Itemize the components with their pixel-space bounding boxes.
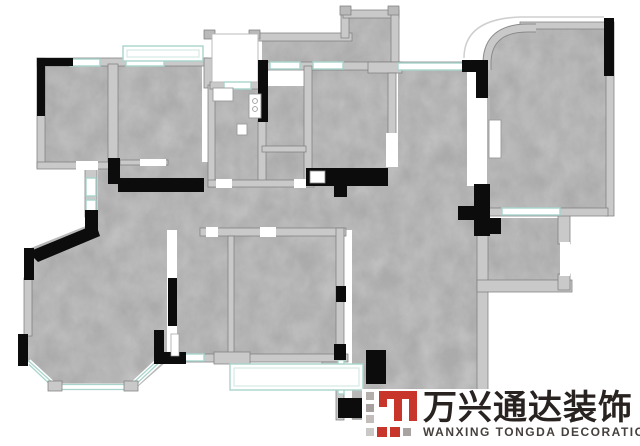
logo-text: 万兴通达装饰 WANXING TONGDA DECORATION [423,391,640,439]
logo-mark-icon [366,391,416,439]
company-logo: 万兴通达装饰 WANXING TONGDA DECORATION [366,391,640,439]
entry-door-leaf [489,120,501,158]
entry-light-well [212,34,258,82]
logo-title-chinese: 万兴通达装饰 [423,391,640,425]
bottom-balcony-railing [230,364,363,390]
black-wall-notch [310,171,325,183]
screenshot-root: 万兴通达装饰 WANXING TONGDA DECORATION [0,0,640,446]
floor-plan [0,0,640,446]
logo-title-english: WANXING TONGDA DECORATION [423,426,640,439]
top-balcony-railing [123,46,203,61]
